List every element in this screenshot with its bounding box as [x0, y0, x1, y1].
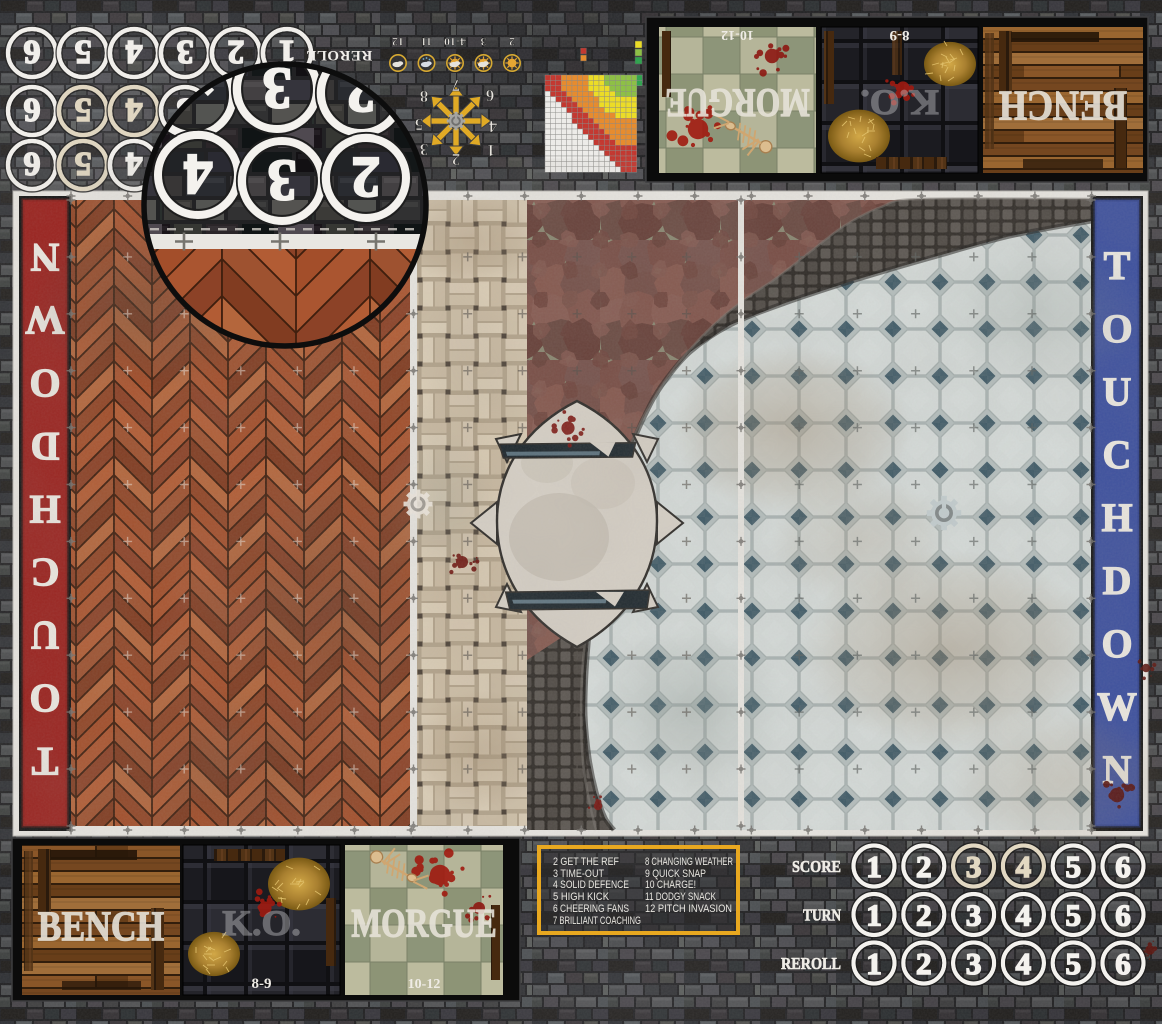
svg-text:5: 5: [1065, 897, 1081, 932]
svg-text:2: 2: [916, 849, 932, 884]
svg-text:MORGUE: MORGUE: [665, 80, 809, 125]
svg-text:K.O.: K.O.: [222, 903, 301, 943]
svg-text:5: 5: [1065, 849, 1081, 884]
svg-text:6: 6: [1115, 849, 1131, 884]
svg-text:5: 5: [1065, 946, 1081, 981]
svg-text:4 SOLID DEFENCE: 4 SOLID DEFENCE: [553, 879, 629, 891]
svg-text:MORGUE: MORGUE: [351, 901, 496, 946]
svg-text:10-12: 10-12: [408, 977, 441, 992]
svg-text:2: 2: [352, 145, 381, 210]
svg-text:6: 6: [1115, 946, 1131, 981]
svg-text:7 BRILLIANT COACHING: 7 BRILLIANT COACHING: [553, 915, 641, 927]
svg-text:3: 3: [966, 849, 982, 884]
svg-text:BENCH: BENCH: [38, 904, 164, 950]
svg-text:11 DODGY SNACK: 11 DODGY SNACK: [645, 891, 716, 903]
svg-text:4: 4: [1016, 849, 1032, 884]
svg-text:4: 4: [1016, 897, 1032, 932]
svg-text:8-9: 8-9: [252, 976, 272, 992]
svg-text:6: 6: [1115, 897, 1131, 932]
svg-text:8 CHANGING WEATHER: 8 CHANGING WEATHER: [645, 856, 733, 868]
svg-text:3: 3: [966, 897, 982, 932]
svg-text:10 CHARGE!: 10 CHARGE!: [645, 879, 696, 891]
svg-text:8-9: 8-9: [890, 27, 910, 43]
svg-text:4: 4: [184, 142, 213, 207]
svg-text:1: 1: [866, 897, 882, 932]
svg-text:2: 2: [916, 946, 932, 981]
svg-text:4: 4: [1016, 946, 1032, 981]
svg-text:12 PITCH INVASION: 12 PITCH INVASION: [645, 903, 732, 915]
svg-text:3: 3: [966, 946, 982, 981]
svg-text:2: 2: [916, 897, 932, 932]
svg-text:SCORE: SCORE: [792, 857, 841, 876]
svg-text:5 HIGH KICK: 5 HIGH KICK: [553, 891, 610, 903]
svg-text:K.O.: K.O.: [860, 83, 939, 123]
svg-text:10-12: 10-12: [721, 27, 754, 42]
svg-text:BENCH: BENCH: [999, 82, 1127, 128]
svg-text:1: 1: [866, 946, 882, 981]
svg-text:1: 1: [866, 849, 882, 884]
svg-text:3: 3: [268, 148, 297, 213]
svg-text:2 GET THE REF: 2 GET THE REF: [553, 856, 619, 868]
svg-text:TURN: TURN: [803, 906, 842, 925]
svg-text:REROLL: REROLL: [781, 954, 841, 973]
svg-text:6 CHEERING FANS: 6 CHEERING FANS: [553, 903, 629, 915]
